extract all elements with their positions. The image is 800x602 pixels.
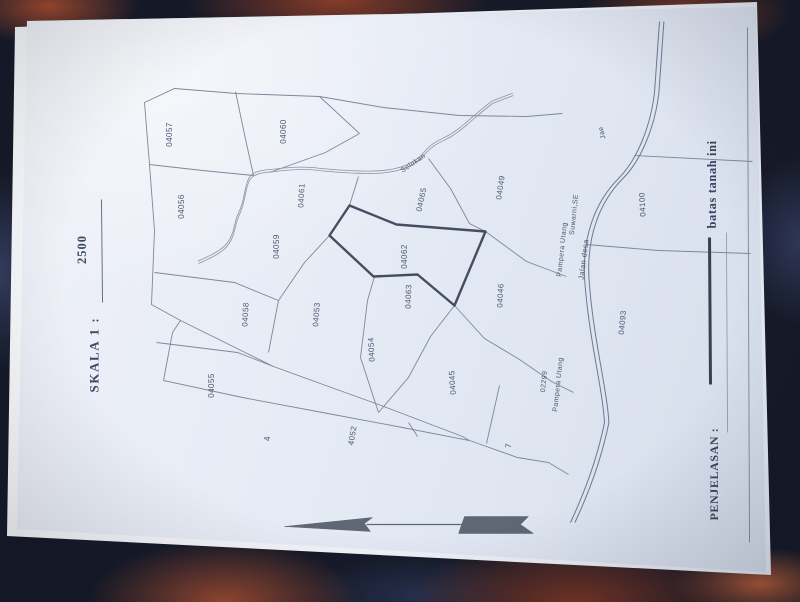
map-frame-line: [748, 27, 750, 542]
parcel-label-4: 4: [263, 436, 272, 441]
scale-underline: [102, 199, 103, 302]
parcel-label-7: 7: [504, 442, 513, 448]
parcel-map-drawing: [23, 12, 758, 562]
legend-thick-line: [710, 237, 711, 384]
parcel-label-04045: 04045: [447, 369, 458, 394]
parcel-boundaries: [145, 88, 753, 474]
parcel-label-04059: 04059: [272, 234, 281, 259]
map-paper: SKALA 1 : 2500 PENJELASAN : batas tanah …: [0, 0, 800, 602]
stream-line: [198, 93, 514, 263]
legend-penjelasan-label: PENJELASAN :: [707, 427, 722, 520]
parcel-label-04061: 04061: [296, 183, 306, 208]
legend-boundary-label: batas tanah ini: [705, 140, 720, 228]
parcel-label-04056: 04056: [177, 194, 186, 219]
parcel-label-04100: 04100: [637, 192, 647, 217]
parcel-label-04062: 04062: [400, 244, 409, 269]
north-arrow: [285, 516, 534, 533]
parcel-label-04058: 04058: [240, 302, 250, 327]
parcel-label-04057: 04057: [165, 122, 174, 147]
scale-label: SKALA 1 :: [87, 316, 103, 392]
map-portrait-content: SKALA 1 : 2500 PENJELASAN : batas tanah …: [23, 12, 758, 562]
parcel-label-04055: 04055: [207, 373, 216, 398]
parcel-label-04054: 04054: [366, 337, 376, 362]
parcel-label-04063: 04063: [404, 284, 414, 309]
photographed-map-scene: SKALA 1 : 2500 PENJELASAN : batas tanah …: [0, 0, 800, 602]
parcel-label-04053: 04053: [311, 301, 322, 326]
scale-value: 2500: [75, 235, 90, 264]
parcel-label-04060: 04060: [279, 119, 288, 144]
parcel-label-04046: 04046: [495, 283, 505, 308]
legend-underline: [727, 232, 728, 432]
